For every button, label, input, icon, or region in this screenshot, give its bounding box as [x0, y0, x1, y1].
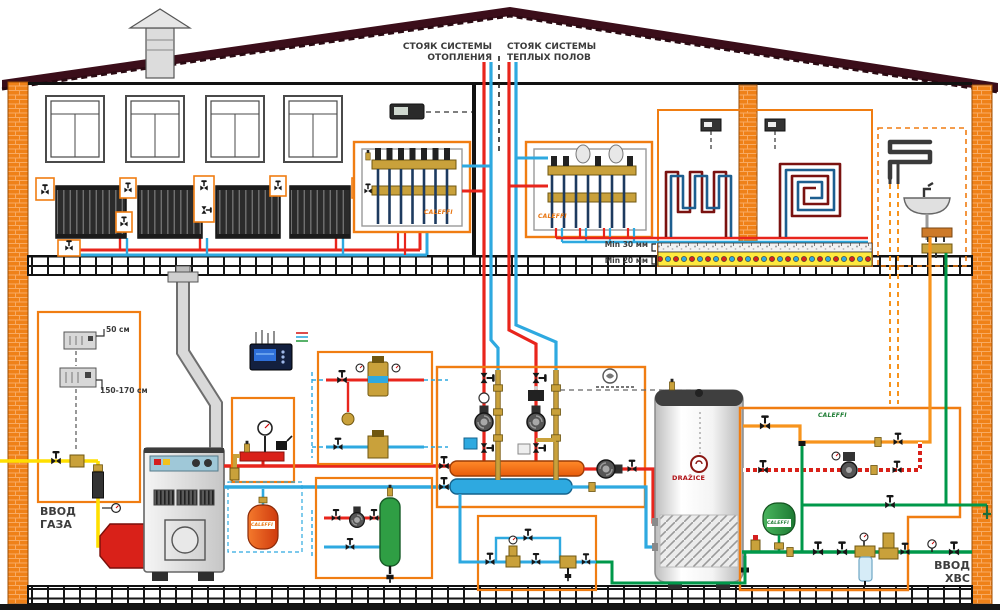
boiler-supply-return-lines: [224, 466, 452, 487]
radiator-2: [138, 186, 202, 238]
expansion-tank-dhw: [751, 503, 795, 552]
brand-caleffi-floor-cabinet: CALEFFI: [538, 213, 567, 220]
left-wall: [8, 82, 28, 604]
gas-inlet-label: ВВОД ГАЗА: [40, 505, 100, 531]
boiler-controller: [250, 330, 308, 370]
window-2: [126, 96, 184, 162]
supply-collector: [450, 461, 584, 476]
ground-line: [0, 604, 1000, 610]
heating-manifold-cabinet: [354, 142, 491, 232]
gas-detector-lower: [60, 368, 102, 390]
pump-brand-logo: [596, 369, 636, 387]
towel-radiator: [890, 142, 930, 178]
brand-caleffi-dhw-group: CALEFFI: [818, 412, 847, 419]
gas-detector-bottom-height-label: 150-170 см: [100, 386, 152, 395]
floor-thermostat-2: [765, 119, 785, 150]
riser-floor-label: СТОЯК СИСТЕМЫ ТЕПЛЫХ ПОЛОВ: [507, 42, 603, 64]
brand-water-heater: DRAŽICE: [672, 474, 728, 482]
water-filter: [855, 533, 875, 587]
filling-pressure-reducer: [506, 536, 520, 567]
schematic-canvas: [0, 0, 1000, 612]
water-heater-coil-zone: [660, 515, 738, 567]
riser-heating-label: СТОЯК СИСТЕМЫ ОТОПЛЕНИЯ: [398, 42, 492, 64]
mixing-valve-actuator: [528, 390, 544, 401]
radiator-4: [290, 186, 350, 238]
boiler: [144, 448, 224, 581]
boiler-flue: [168, 266, 216, 448]
brand-caleffi-dhw-tank: CALEFFI: [767, 521, 791, 526]
return-collector: [450, 479, 572, 494]
dhw-zone: [740, 237, 991, 590]
window-1: [46, 96, 104, 162]
gas-filter: [70, 455, 84, 467]
heating-system-schematic: СТОЯК СИСТЕМЫ ОТОПЛЕНИЯ СТОЯК СИСТЕМЫ ТЕ…: [0, 0, 1000, 612]
backflow-preventer: [560, 556, 576, 581]
floorheating-coil-spiral-supply: [780, 164, 840, 237]
gas-flex-connector: [93, 472, 104, 498]
room-divider-wall: [472, 85, 476, 256]
brand-caleffi-heating-cabinet: CALEFFI: [424, 209, 453, 216]
screed-min-label: Min 30 мм: [596, 240, 648, 249]
room-thermostat: [390, 104, 472, 119]
safety-valve: [276, 441, 287, 450]
brand-caleffi-heating-tank: CALEFFI: [251, 523, 275, 528]
right-wall: [972, 85, 992, 604]
gas-detector-upper: [64, 329, 104, 349]
window-4: [284, 96, 342, 162]
ceiling-line: [28, 82, 972, 85]
safety-group-box: [230, 398, 294, 482]
floorheating-manifold-cabinet: [509, 142, 652, 242]
floor-thermostat-1: [701, 119, 721, 150]
window-3: [206, 96, 264, 162]
hydraulic-separator-box: [312, 478, 432, 583]
windows: [46, 96, 342, 162]
zone-actuator-blue: [464, 438, 477, 449]
hydraulic-separator: [380, 498, 400, 566]
water-heater: [652, 379, 743, 589]
faucet-icon: [924, 183, 933, 197]
expansion-tank-heating: [228, 482, 302, 552]
ground-floor-slab: [28, 586, 972, 604]
pressure-reducer: [879, 533, 898, 559]
manifold-drop-pipes: [552, 175, 624, 228]
recirculation-pump: [832, 452, 857, 478]
cold-water-inlet-label: ВВОД ХВС: [918, 559, 970, 585]
insulation-min-label: Min 20 мм: [596, 256, 648, 265]
gas-burner: [100, 524, 146, 568]
gas-detector-top-height-label: 50 см: [106, 325, 146, 334]
floor-buildup-section: [658, 243, 872, 266]
filter-group-box: [312, 352, 448, 464]
radiators: [36, 176, 368, 256]
